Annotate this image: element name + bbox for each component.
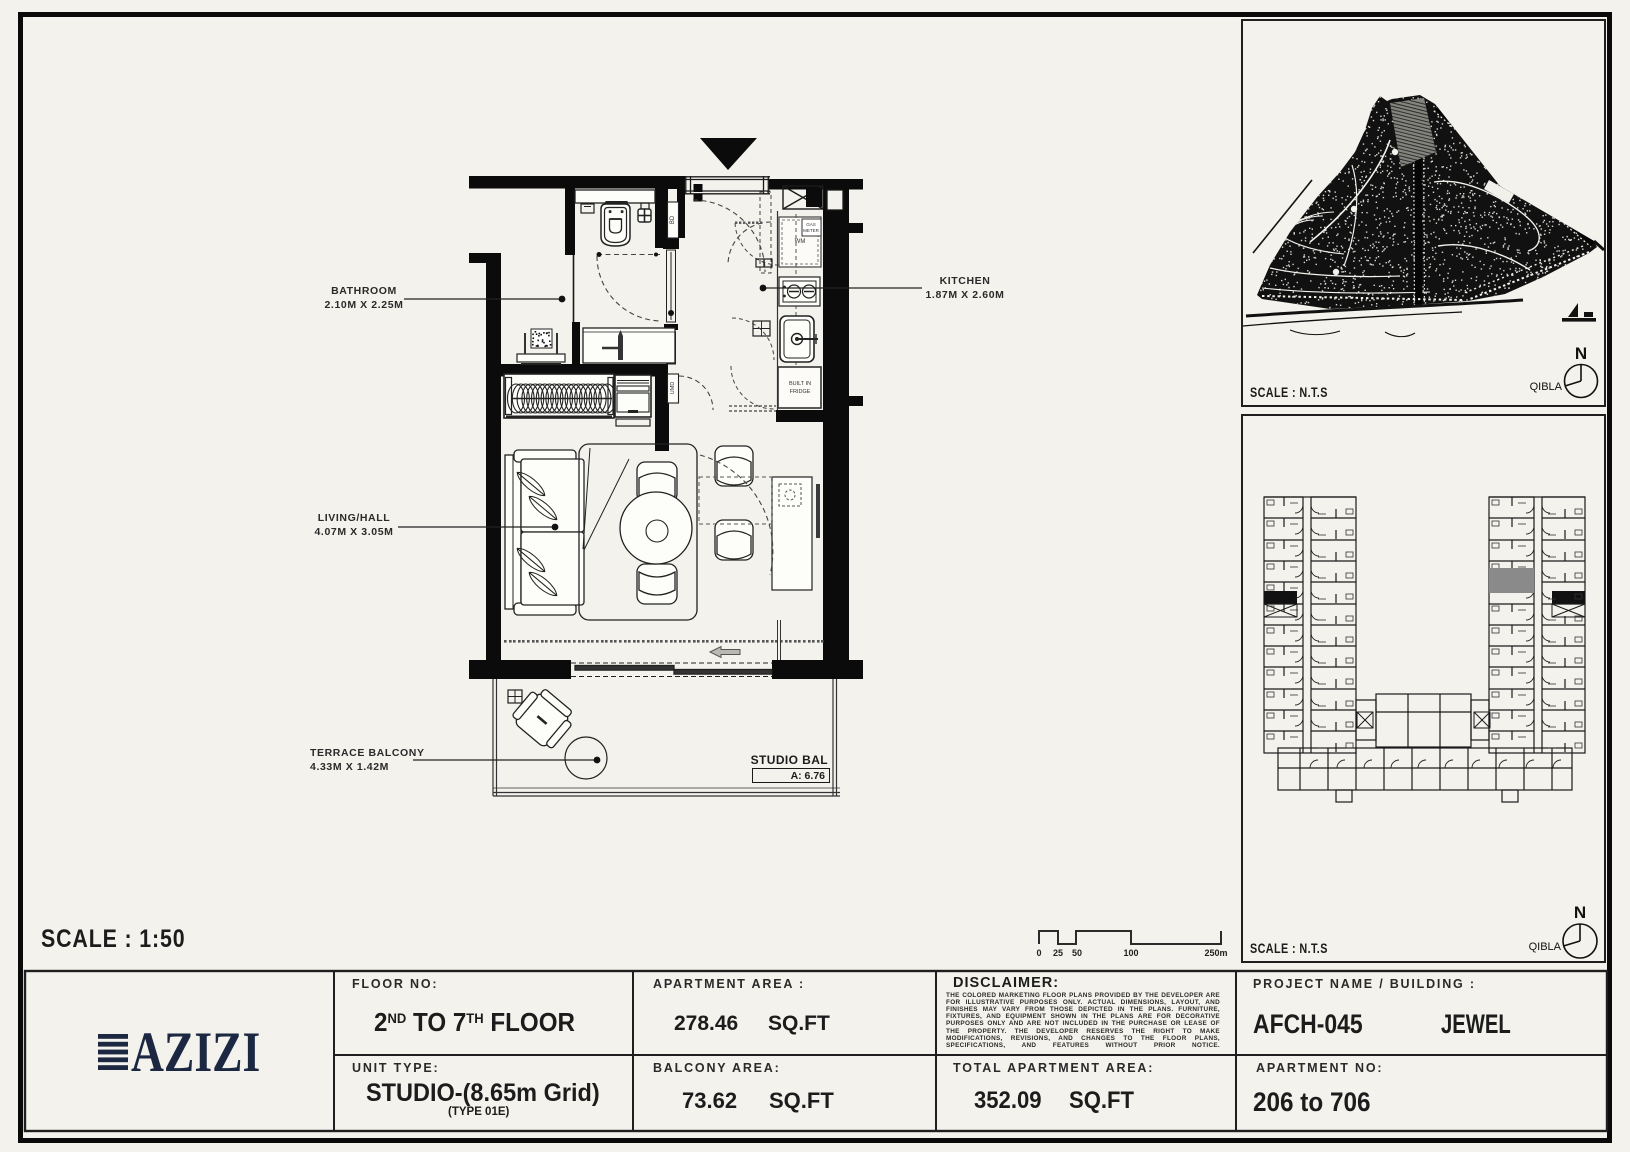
- svg-text:QIBLA: QIBLA: [1529, 941, 1562, 953]
- svg-text:N: N: [1574, 903, 1586, 922]
- svg-text:100: 100: [1123, 948, 1138, 958]
- svg-text:BD: BD: [670, 215, 676, 224]
- svg-text:N: N: [1575, 344, 1587, 363]
- svg-text:GAS: GAS: [806, 222, 816, 227]
- svg-text:250m: 250m: [1204, 948, 1227, 958]
- svg-text:BUILT IN: BUILT IN: [789, 381, 811, 387]
- svg-text:0: 0: [1036, 948, 1041, 958]
- svg-text:METER: METER: [803, 228, 820, 233]
- svg-text:50: 50: [1072, 948, 1082, 958]
- svg-text:UMD: UMD: [670, 382, 676, 395]
- svg-text:FRIDGE: FRIDGE: [790, 389, 811, 395]
- svg-text:25: 25: [1053, 948, 1063, 958]
- svg-text:QIBLA: QIBLA: [1530, 381, 1563, 393]
